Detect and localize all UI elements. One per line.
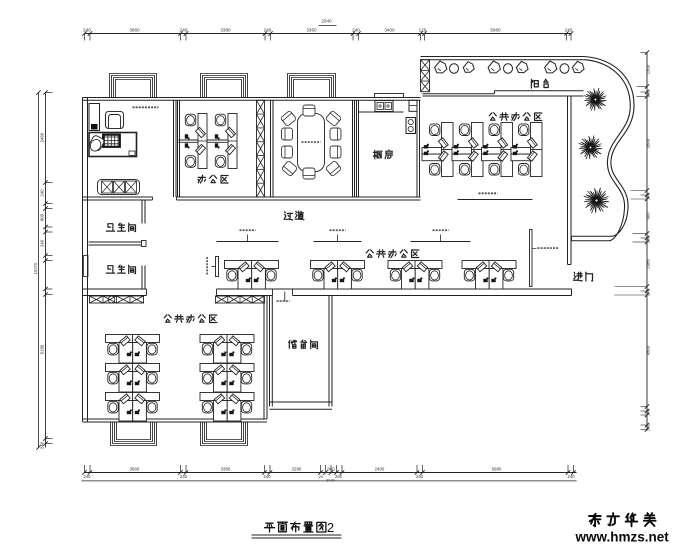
- svg-text:240: 240: [180, 28, 188, 33]
- svg-text:5980: 5980: [492, 466, 502, 471]
- svg-text:140: 140: [646, 408, 651, 416]
- svg-text:3660: 3660: [130, 466, 140, 471]
- svg-text:3660: 3660: [129, 28, 140, 33]
- svg-text:2400: 2400: [375, 466, 385, 471]
- svg-text:1300: 1300: [646, 64, 651, 74]
- svg-text:120: 120: [419, 28, 427, 33]
- svg-text:800: 800: [40, 213, 45, 221]
- svg-text:240: 240: [84, 474, 92, 479]
- svg-text:5980: 5980: [490, 28, 501, 33]
- svg-text:3360: 3360: [306, 28, 317, 33]
- svg-text:840: 840: [327, 466, 335, 471]
- svg-text:5180: 5180: [40, 344, 45, 354]
- svg-text:240: 240: [335, 474, 343, 479]
- svg-text:3600: 3600: [646, 138, 651, 148]
- svg-text:20: 20: [319, 474, 324, 479]
- svg-text:240: 240: [646, 423, 651, 431]
- svg-text:240: 240: [646, 288, 651, 296]
- svg-text:240: 240: [416, 474, 424, 479]
- svg-text:240: 240: [352, 28, 360, 33]
- svg-text:3400: 3400: [384, 28, 395, 33]
- svg-text:2040: 2040: [321, 19, 332, 24]
- svg-text:240: 240: [83, 28, 91, 33]
- svg-text:3380: 3380: [221, 466, 231, 471]
- svg-text:240: 240: [646, 235, 651, 243]
- svg-text:240: 240: [264, 28, 272, 33]
- svg-text:2460: 2460: [40, 132, 45, 142]
- svg-text:240: 240: [565, 28, 573, 33]
- svg-text:240: 240: [264, 474, 272, 479]
- svg-text:240: 240: [568, 474, 576, 479]
- svg-text:www.hmzs.net: www.hmzs.net: [575, 530, 670, 545]
- svg-text:900: 900: [646, 212, 651, 220]
- svg-text:140: 140: [646, 192, 651, 200]
- svg-text:3040: 3040: [326, 478, 336, 483]
- svg-text:2280: 2280: [292, 466, 302, 471]
- svg-text:3380: 3380: [220, 28, 231, 33]
- svg-text:240: 240: [40, 189, 45, 197]
- svg-text:1985: 1985: [646, 259, 651, 269]
- svg-text:240: 240: [40, 441, 45, 449]
- svg-text:140: 140: [646, 90, 651, 98]
- svg-text:15270: 15270: [33, 262, 38, 274]
- svg-text:240: 240: [180, 474, 188, 479]
- svg-text:4500: 4500: [646, 345, 651, 355]
- svg-text:240: 240: [40, 239, 45, 247]
- svg-text:2: 2: [327, 520, 334, 535]
